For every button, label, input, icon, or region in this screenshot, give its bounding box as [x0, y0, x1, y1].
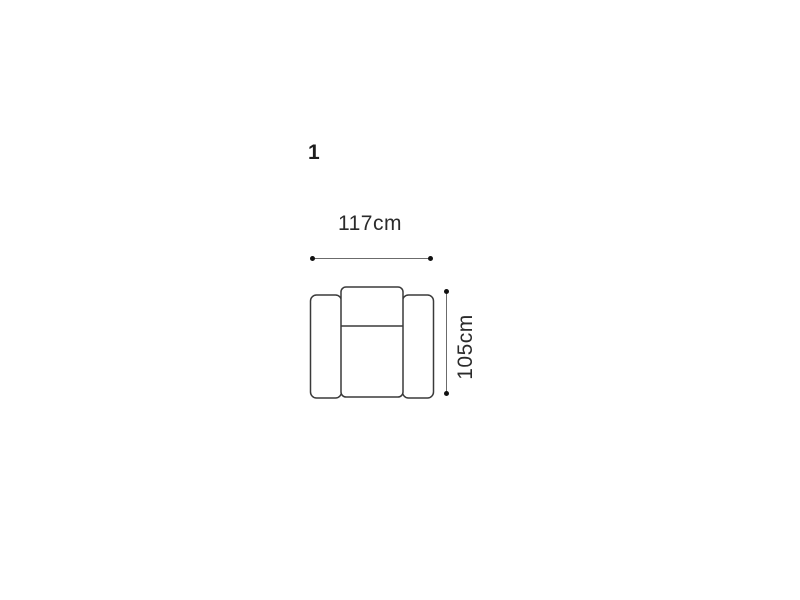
left-armrest-shape [311, 295, 342, 398]
right-armrest-shape [403, 295, 434, 398]
width-dimension-line [312, 258, 431, 259]
armchair-outline-drawing [300, 280, 460, 410]
dimension-endpoint-dot [428, 256, 433, 261]
item-number-label: 1 [308, 141, 320, 165]
dimension-endpoint-dot [310, 256, 315, 261]
furniture-dimension-diagram: 1 117cm 105cm [0, 0, 800, 600]
width-dimension-label: 117cm [338, 212, 402, 236]
seat-backrest-shape [341, 287, 403, 397]
